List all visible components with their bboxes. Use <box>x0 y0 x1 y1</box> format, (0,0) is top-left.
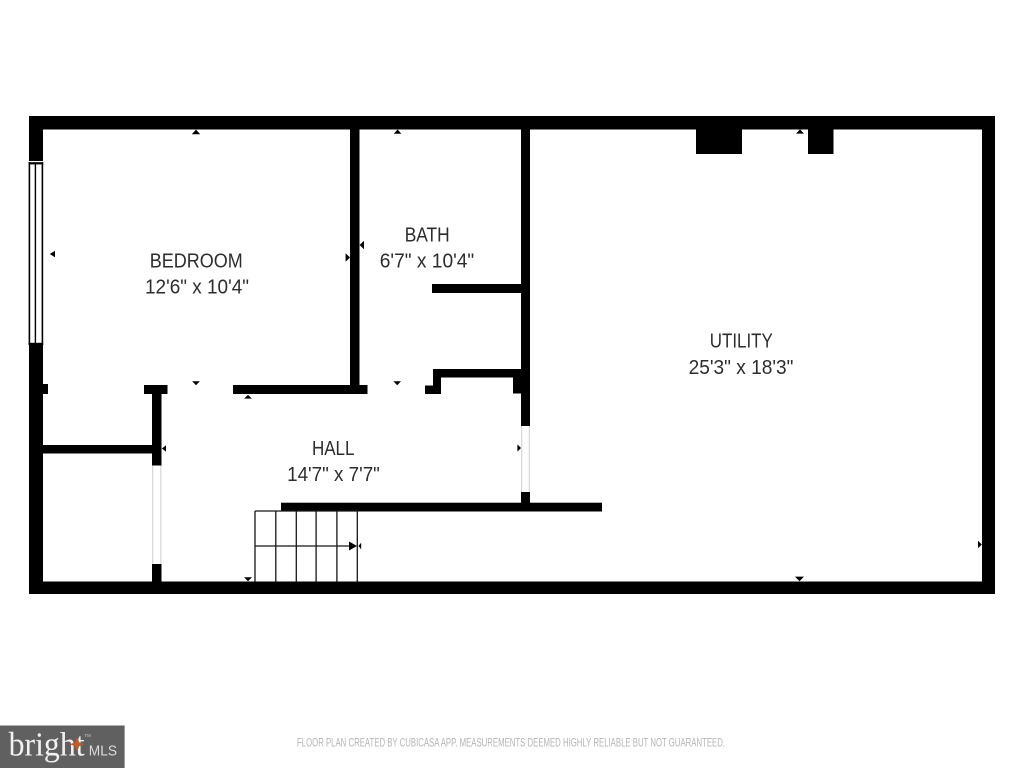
svg-text:HALL: HALL <box>312 438 355 460</box>
svg-text:BEDROOM: BEDROOM <box>150 251 243 273</box>
svg-text:14'7" x 7'7": 14'7" x 7'7" <box>287 464 380 486</box>
svg-text:12'6" x 10'4": 12'6" x 10'4" <box>145 277 249 299</box>
svg-text:BATH: BATH <box>405 225 450 247</box>
svg-text:6'7" x 10'4": 6'7" x 10'4" <box>380 251 475 273</box>
svg-text:UTILITY: UTILITY <box>710 331 773 353</box>
svg-text:25'3" x 18'3": 25'3" x 18'3" <box>689 357 794 379</box>
svg-text:FLOOR PLAN CREATED BY CUBICASA: FLOOR PLAN CREATED BY CUBICASA APP. MEAS… <box>297 735 725 749</box>
svg-text:MLS: MLS <box>89 744 117 760</box>
svg-text:TM: TM <box>84 733 91 738</box>
